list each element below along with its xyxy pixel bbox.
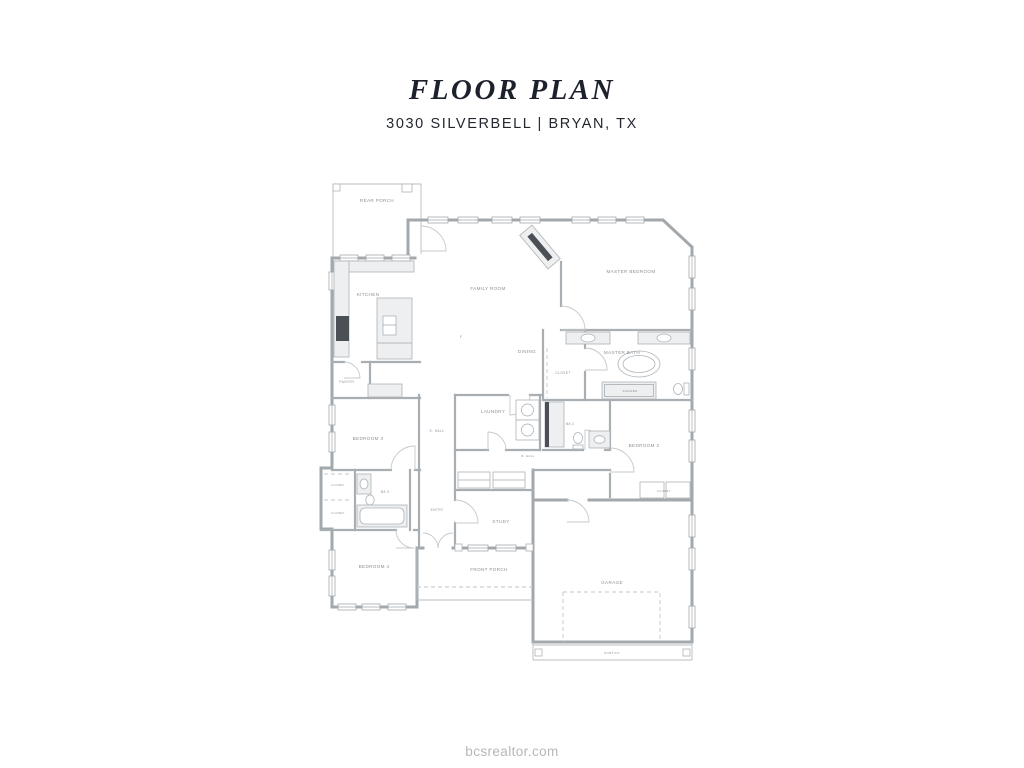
room-label-master-bath: MASTER BATH (604, 350, 640, 355)
fireplace (520, 225, 561, 269)
closet-boxes (458, 472, 690, 498)
room-label-front-porch: FRONT PORCH (470, 567, 507, 572)
page: FLOOR PLAN 3030 SILVERBELL | BRYAN, TX (0, 0, 1024, 768)
room-label-pantry: PANTRY (339, 380, 355, 384)
room-label-ba3: BA 3 (381, 490, 389, 494)
room-label-closet-upper: CLOSET (331, 483, 345, 487)
page-subtitle: 3030 SILVERBELL | BRYAN, TX (0, 116, 1024, 132)
page-title: FLOOR PLAN (0, 74, 1024, 107)
exterior-walls (321, 220, 692, 642)
room-label-kitchen: KITCHEN (357, 292, 380, 297)
room-label-dining: DINING (518, 349, 536, 354)
room-label-master-bedroom: MASTER BEDROOM (606, 269, 655, 274)
room-label-b-hall: B. HALL (521, 454, 534, 458)
room-label-entry: ENTRY (431, 508, 444, 512)
watermark: bcsrealtor.com (0, 744, 1024, 759)
room-label-bedroom2: BEDROOM 2 (629, 443, 660, 448)
room-label-bedroom3: BEDROOM 3 (353, 436, 384, 441)
floor-plan: REAR PORCH KITCHEN PANTRY FAMILY ROOM DI… (310, 170, 706, 670)
floor-symbol-f: F (460, 335, 462, 339)
room-label-bedroom2-closet: CLOSET (657, 489, 671, 493)
laundry-bath2-fixtures (516, 400, 610, 449)
master-bath-fixtures (547, 332, 690, 399)
room-label-study: STUDY (492, 519, 509, 524)
bath3-fixtures (324, 474, 407, 527)
room-label-e-hall: E. HALL (430, 429, 445, 433)
room-label-garage: GARAGE (601, 580, 623, 585)
room-label-laundry: LAUNDRY (481, 409, 505, 414)
room-label-bedroom4: BEDROOM 4 (359, 564, 390, 569)
room-label-master-closet: CLOSET (555, 371, 570, 375)
room-label-rear-porch: REAR PORCH (360, 198, 394, 203)
plan-header: FLOOR PLAN 3030 SILVERBELL | BRYAN, TX (0, 74, 1024, 132)
kitchen-fixtures (334, 261, 414, 397)
room-label-ba2: BA 2 (566, 422, 574, 426)
room-label-portico: PORTICO (604, 651, 620, 655)
room-label-closet-lower: CLOSET (331, 511, 345, 515)
room-label-shower: SHOWER (622, 389, 637, 393)
room-label-family-room: FAMILY ROOM (470, 286, 505, 291)
